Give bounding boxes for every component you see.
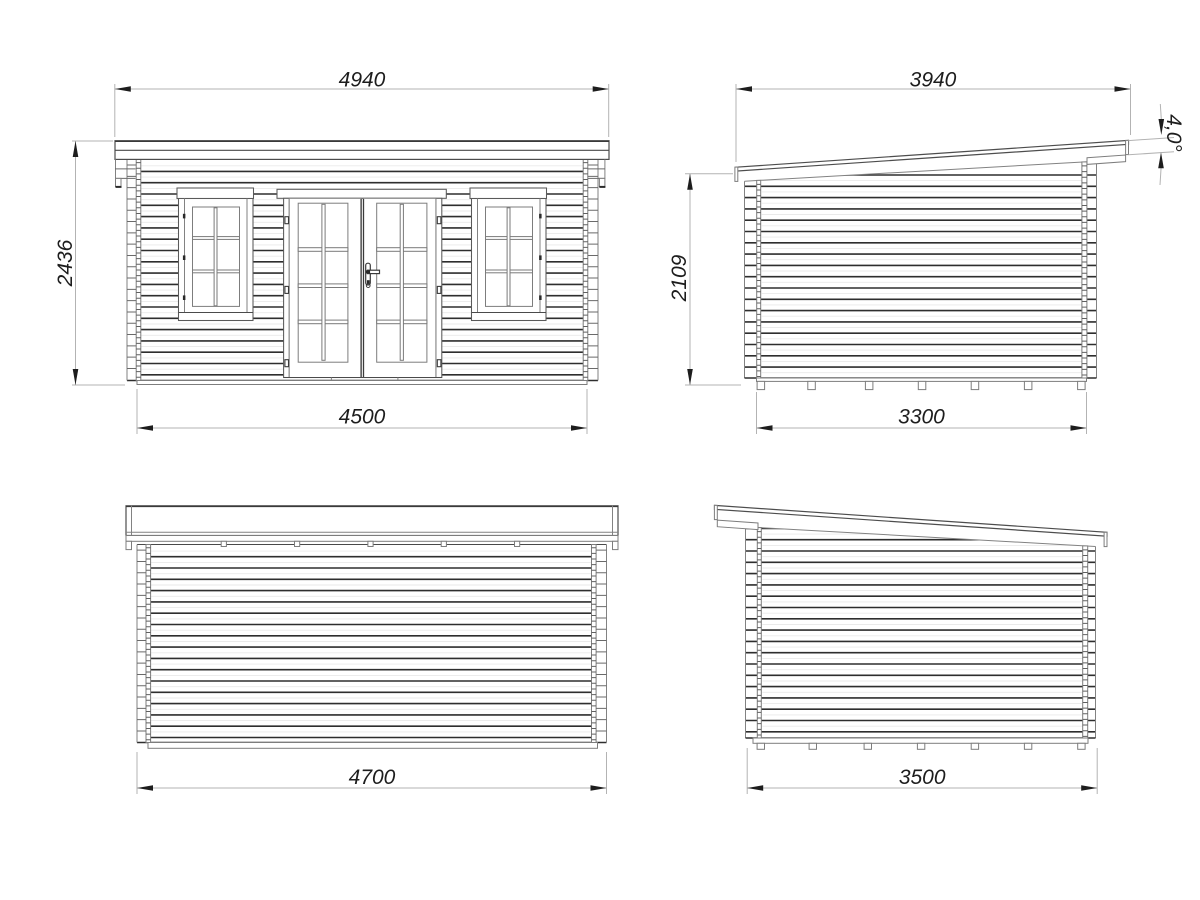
svg-text:4940: 4940 [339, 69, 386, 92]
svg-text:3300: 3300 [898, 406, 945, 429]
svg-text:3940: 3940 [910, 69, 957, 92]
svg-text:2436: 2436 [54, 239, 77, 287]
svg-text:4700: 4700 [349, 766, 396, 789]
svg-text:2109: 2109 [668, 254, 691, 302]
svg-text:3500: 3500 [899, 766, 946, 789]
svg-text:4500: 4500 [339, 406, 386, 429]
svg-text:4,0°: 4,0° [1162, 114, 1185, 152]
